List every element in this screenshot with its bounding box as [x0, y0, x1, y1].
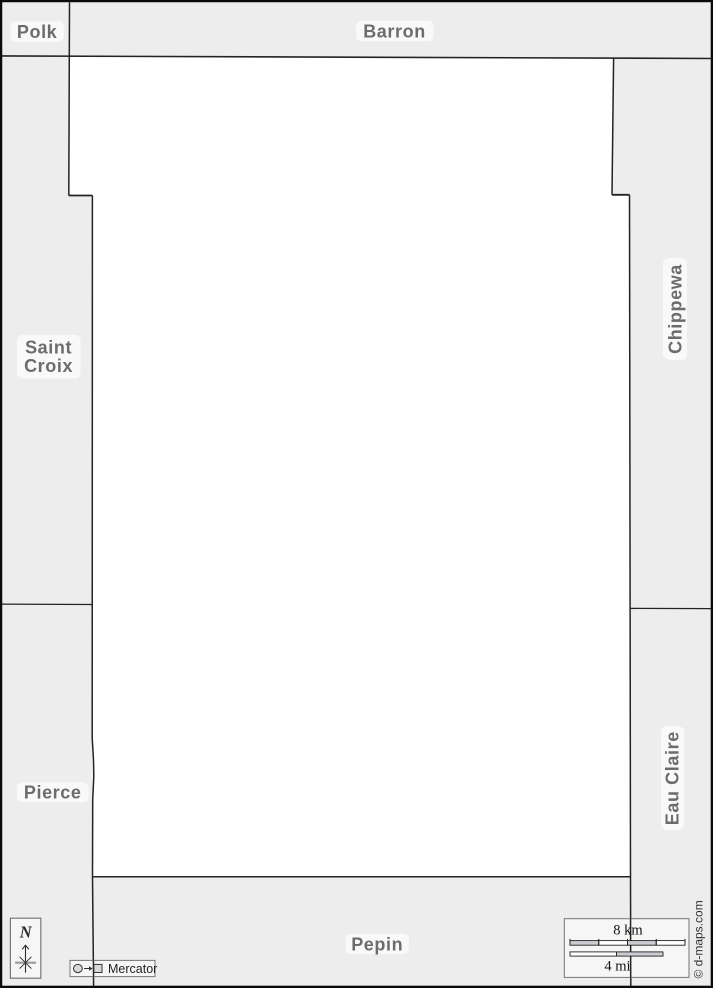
svg-text:Mercator: Mercator [108, 962, 157, 976]
svg-text:Pierce: Pierce [24, 783, 82, 803]
svg-text:Barron: Barron [363, 21, 426, 41]
svg-text:© d-maps.com: © d-maps.com [691, 900, 705, 978]
svg-text:8 km: 8 km [613, 923, 643, 939]
svg-text:4 mi: 4 mi [604, 958, 630, 974]
svg-text:Saint: Saint [25, 337, 72, 357]
svg-text:Pepin: Pepin [351, 934, 403, 954]
svg-text:N: N [19, 923, 33, 942]
svg-text:Eau Claire: Eau Claire [662, 731, 682, 825]
svg-text:Chippewa: Chippewa [666, 264, 686, 354]
svg-text:Polk: Polk [17, 22, 58, 42]
svg-text:Croix: Croix [24, 356, 73, 376]
